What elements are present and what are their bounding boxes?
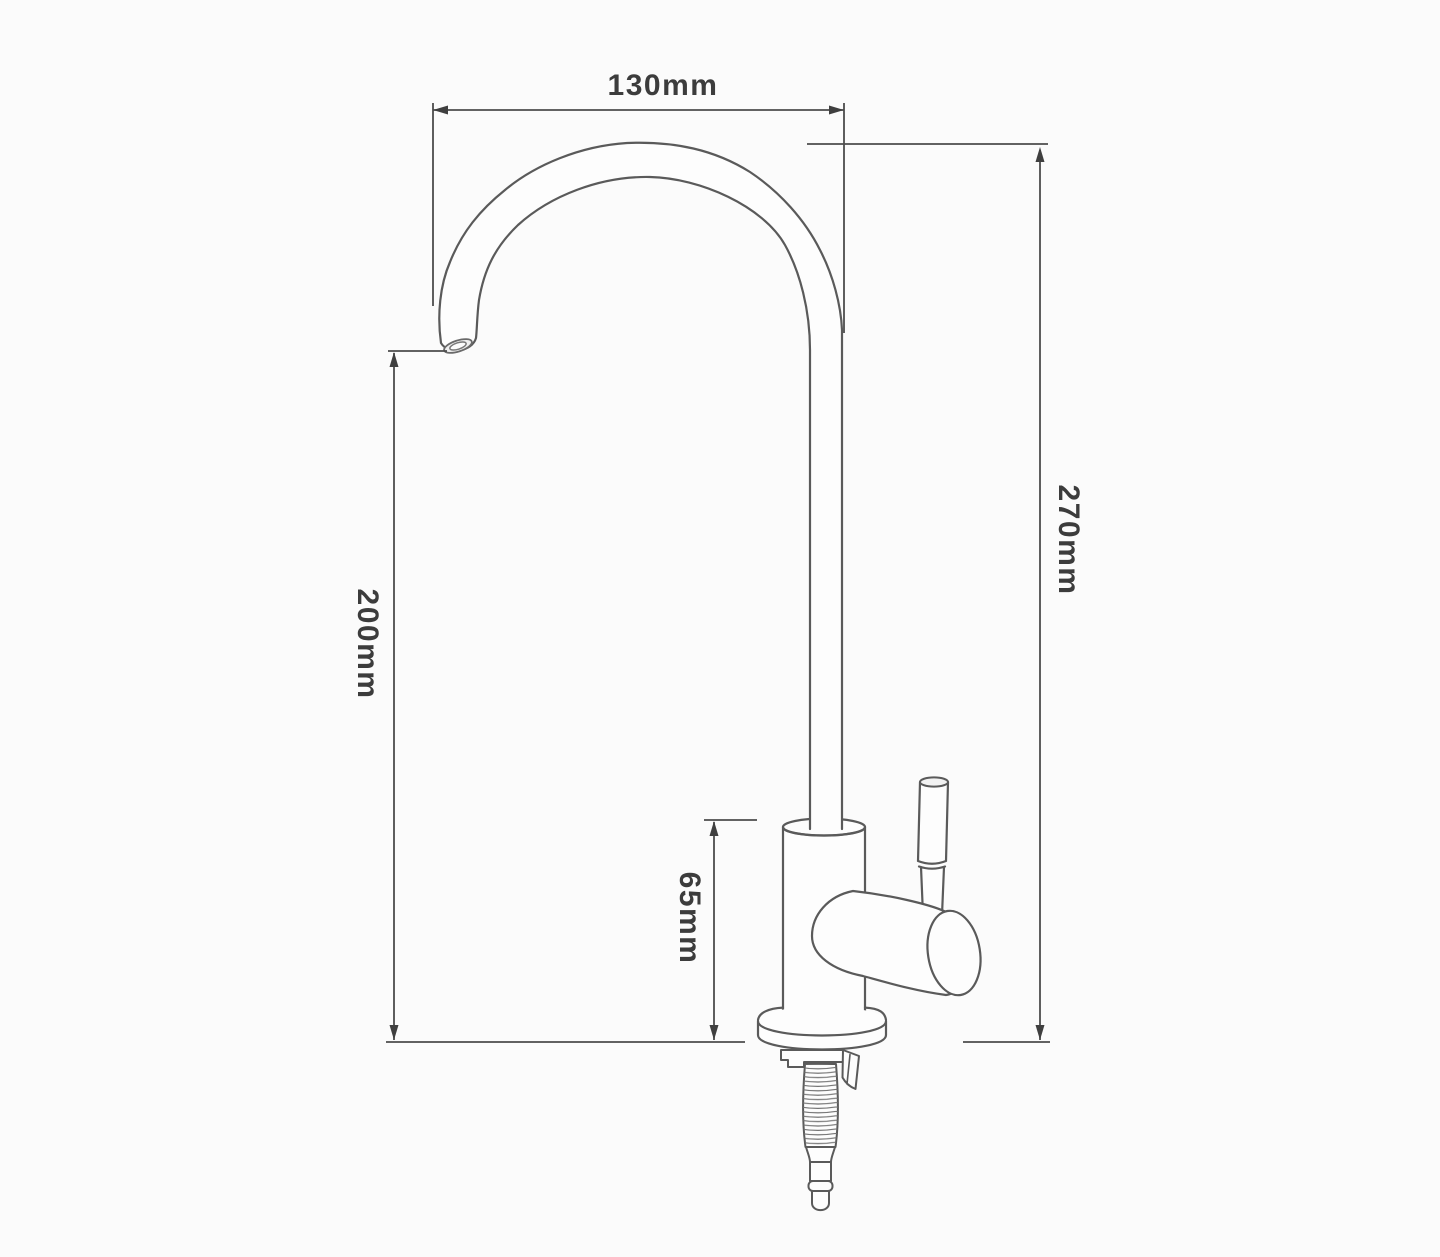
wing-nut-tab <box>843 1050 860 1089</box>
mounting-hardware <box>781 1050 859 1210</box>
arrow-up-icon <box>1036 147 1045 162</box>
dim-label-overall-height: 270mm <box>1051 485 1085 596</box>
arrow-left-icon <box>433 106 448 115</box>
faucet-technical-drawing <box>0 0 1440 1257</box>
arrow-down-icon <box>710 1025 719 1040</box>
shank-ring <box>809 1181 833 1191</box>
arrow-down-icon <box>1036 1025 1045 1040</box>
arrow-up-icon <box>710 821 719 836</box>
dim-body-height <box>704 820 757 1040</box>
outlet-tube <box>812 1191 829 1210</box>
dim-spout-height <box>388 351 447 1040</box>
arrow-up-icon <box>390 352 399 367</box>
dim-label-body-height: 65mm <box>672 872 706 965</box>
shank-neck <box>806 1147 835 1162</box>
dim-label-spout-width: 130mm <box>608 69 719 103</box>
handle-lever <box>918 777 948 915</box>
shank-cylinder <box>810 1162 831 1181</box>
dim-label-spout-height: 200mm <box>350 589 384 700</box>
arrow-right-icon <box>829 106 844 115</box>
drawing-canvas: 130mm 270mm 200mm 65mm <box>0 0 1440 1257</box>
spout-tube <box>439 143 865 836</box>
threaded-shank <box>803 1064 838 1147</box>
base-flange <box>758 1007 886 1050</box>
arrow-down-icon <box>390 1025 399 1040</box>
